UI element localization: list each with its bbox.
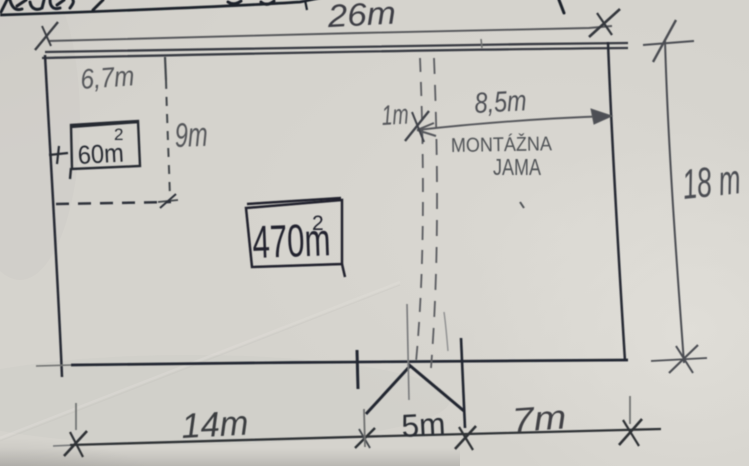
svg-text:8,5m: 8,5m (474, 85, 528, 120)
svg-text:9m: 9m (174, 116, 208, 155)
svg-text:26m: 26m (326, 0, 397, 34)
svg-text:18 m: 18 m (680, 155, 743, 208)
svg-text:2: 2 (312, 212, 324, 235)
svg-text:7m: 7m (511, 398, 568, 440)
svg-text:1m: 1m (381, 99, 410, 131)
svg-text:14m: 14m (180, 404, 249, 446)
svg-text:5m: 5m (400, 406, 446, 444)
svg-text:JAMA: JAMA (493, 154, 542, 180)
svg-text:2: 2 (114, 125, 123, 144)
svg-text:6,7m: 6,7m (79, 60, 135, 95)
